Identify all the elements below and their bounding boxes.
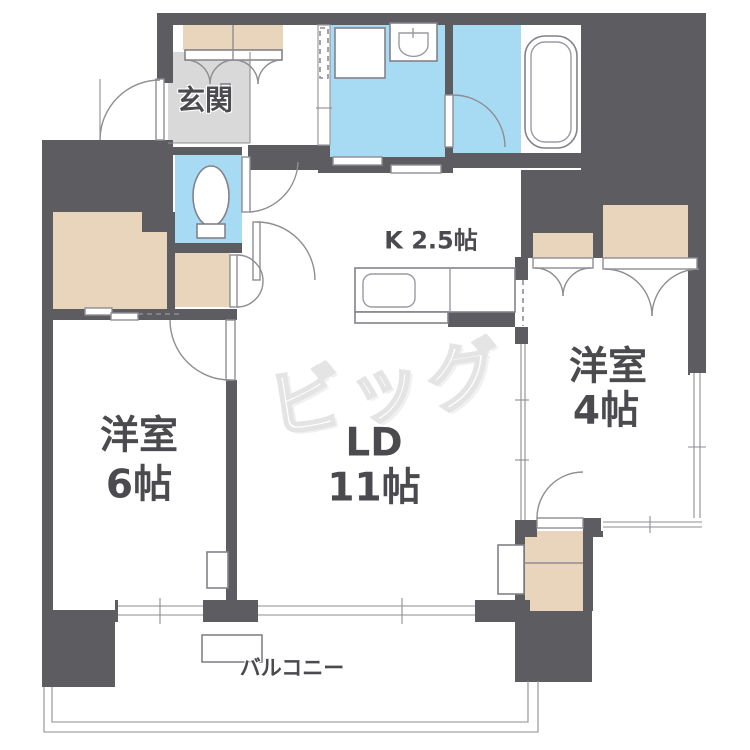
wall-toilet-top — [168, 147, 242, 155]
label-west6-name: 洋室 — [100, 417, 178, 458]
wall-east-stub-lower — [515, 327, 528, 344]
window-west4-south — [601, 516, 702, 533]
wall-west6-top — [53, 309, 237, 320]
wall-washroom-bath-upper — [445, 23, 453, 95]
wall-left — [42, 212, 53, 610]
label-balcony: バルコニー — [240, 657, 345, 679]
west6-wall-box — [207, 552, 228, 588]
label-west6-size: 6帖 — [106, 466, 172, 507]
west6-door — [170, 320, 235, 380]
wall-east-stub-upper — [515, 257, 528, 280]
wall-hall-divider — [248, 145, 330, 170]
wall-closet4-left — [521, 233, 533, 258]
west4-closet-right-fill — [603, 205, 697, 258]
label-kitchen: K 2.5帖 — [384, 228, 477, 253]
wall-left-block — [42, 140, 173, 212]
pipe-space-box — [498, 545, 524, 594]
label-west4-size: 4帖 — [573, 392, 639, 433]
window-west4-east — [688, 373, 706, 531]
bathtub-icon — [525, 36, 577, 148]
toilet-icon — [193, 166, 229, 238]
wall-bottom-left-block — [42, 610, 115, 687]
storage-fill — [525, 531, 583, 611]
wall-top-right-block — [581, 13, 706, 192]
west4-door — [537, 472, 583, 528]
label-entrance: 玄関 — [177, 85, 233, 114]
bathroom-fill — [453, 25, 521, 157]
window-west6-south — [118, 598, 203, 624]
wall-right — [688, 192, 706, 375]
label-west4-name: 洋室 — [569, 348, 647, 389]
washroom-partition-wall — [316, 25, 332, 145]
wall-pillar-bottom — [515, 611, 592, 682]
wall-wic-notch — [142, 212, 173, 232]
balcony-railing — [44, 681, 538, 732]
wall-entrance-left — [157, 13, 173, 83]
west4-closet-doors — [533, 258, 699, 316]
sink-icon — [390, 23, 437, 61]
wall-closet4-mid — [593, 205, 603, 258]
floor-plan: 玄関 K 2.5帖 LD 11帖 洋室 6帖 洋室 4帖 バルコニー ビッグ — [0, 0, 750, 750]
hall-closet-fill — [175, 253, 230, 307]
window-ld-south — [258, 598, 475, 624]
wall-bath-bottom — [453, 153, 583, 168]
entrance-door — [100, 79, 164, 140]
washer-pan-icon — [335, 28, 385, 78]
walkin-closet-fill — [52, 212, 142, 310]
hall-door — [253, 222, 315, 280]
walkin-closet-fill2 — [142, 232, 167, 310]
label-ld-size: 11帖 — [327, 469, 420, 510]
partition-ld-west4 — [515, 344, 529, 520]
wall-toilet-bottom — [168, 243, 242, 253]
wall-mid-east-block — [521, 170, 603, 233]
wall-storage-right — [583, 530, 593, 611]
west4-closet-left-fill — [533, 233, 593, 258]
wall-top — [157, 13, 606, 25]
